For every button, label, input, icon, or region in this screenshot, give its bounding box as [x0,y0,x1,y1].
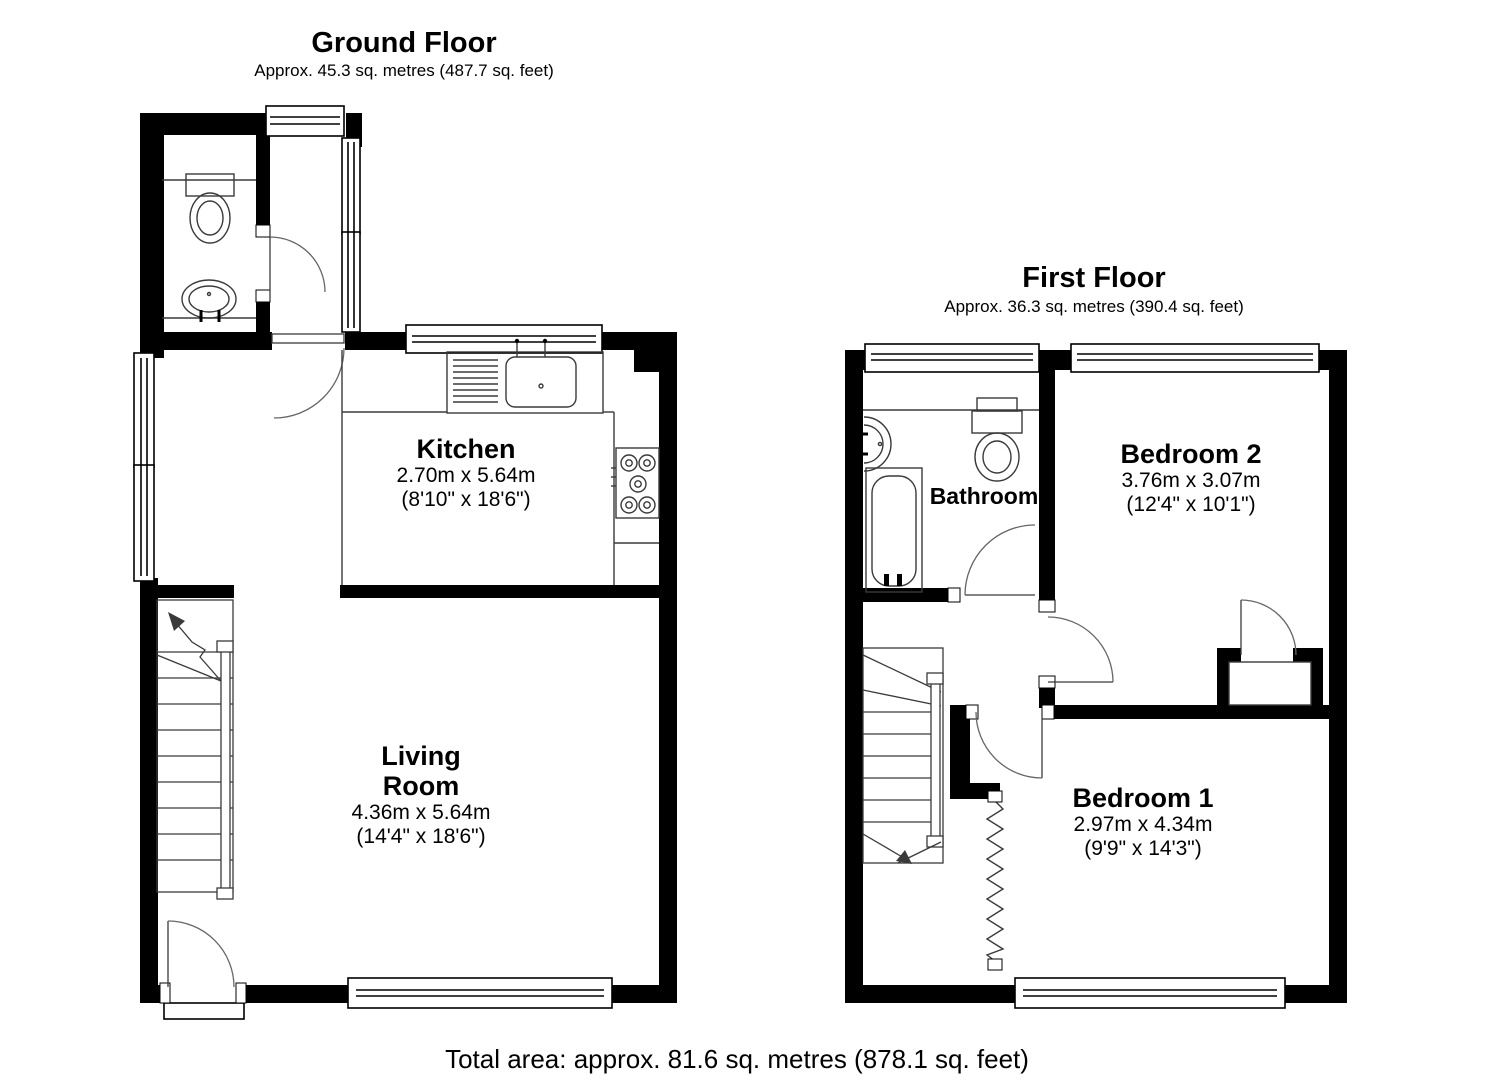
first-floor-doors [948,525,1296,778]
ground-floor-subtitle: Approx. 45.3 sq. metres (487.7 sq. feet) [254,61,554,81]
kitchen-size-metric: 2.70m x 5.64m [397,464,536,488]
room-label-kitchen: Kitchen 2.70m x 5.64m (8'10" x 18'6") [397,434,536,512]
kitchen-name: Kitchen [397,434,536,464]
bedroom-2-size-imperial: (12'4" x 10'1") [1120,493,1261,517]
total-area-text: Total area: approx. 81.6 sq. metres (878… [445,1044,1029,1074]
bedroom-2-name: Bedroom 2 [1120,439,1261,469]
bedroom-1-size-metric: 2.97m x 4.34m [1072,813,1213,837]
floorplan-page: Ground Floor Approx. 45.3 sq. metres (48… [0,0,1485,1080]
bedroom-1-name: Bedroom 1 [1072,783,1213,813]
living-room-size-metric: 4.36m x 5.64m [352,801,491,825]
first-floor-plan [845,344,1347,1008]
bathtub-icon [866,468,922,592]
cupboard-outline [1229,662,1311,705]
room-label-living-room: Living Room 4.36m x 5.64m (14'4" x 18'6"… [352,741,491,849]
bedroom-2-size-metric: 3.76m x 3.07m [1120,469,1261,493]
kitchen-size-imperial: (8'10" x 18'6") [397,488,536,512]
living-room-name-line2: Room [352,771,491,801]
bathroom-toilet-icon [972,398,1022,481]
kitchen-hob-icon [611,448,659,518]
first-floor-stairs [863,648,943,864]
room-label-bathroom: Bathroom [930,483,1039,509]
first-floor-title: First Floor [1022,262,1165,294]
living-room-size-imperial: (14'4" x 18'6") [352,825,491,849]
wc-fixtures [162,174,256,322]
room-label-bedroom-2: Bedroom 2 3.76m x 3.07m (12'4" x 10'1") [1120,439,1261,517]
wc-sink-icon [182,280,236,322]
floorplan-canvas [0,0,1485,1080]
ground-floor-stairs [157,600,233,899]
bedroom-1-size-imperial: (9'9" x 14'3") [1072,837,1213,861]
living-room-name-line1: Living [352,741,491,771]
room-label-bedroom-1: Bedroom 1 2.97m x 4.34m (9'9" x 14'3") [1072,783,1213,861]
first-floor-subtitle: Approx. 36.3 sq. metres (390.4 sq. feet) [944,297,1244,317]
wc-toilet-icon [186,174,234,243]
ground-floor-title: Ground Floor [311,27,496,59]
ground-floor-plan [134,106,677,1019]
